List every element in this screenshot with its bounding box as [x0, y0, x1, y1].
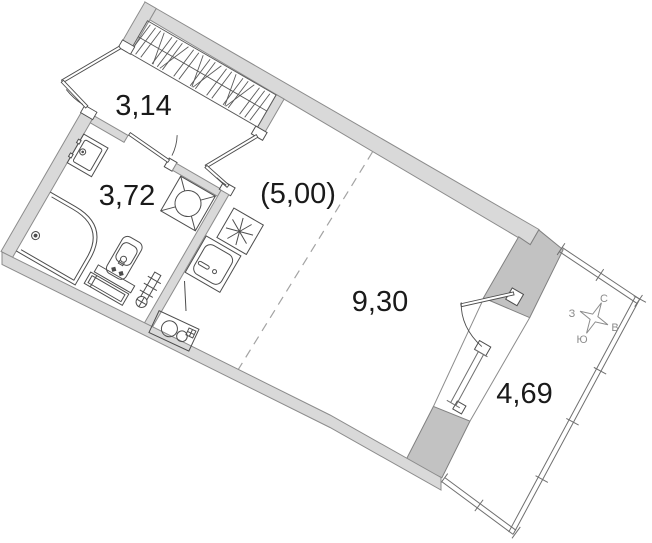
svg-text:(5,00): (5,00)	[260, 178, 336, 210]
svg-text:4,69: 4,69	[496, 378, 552, 410]
svg-text:С: С	[600, 293, 608, 305]
svg-text:З: З	[569, 308, 576, 320]
svg-text:9,30: 9,30	[352, 286, 408, 318]
svg-text:Ю: Ю	[576, 334, 587, 346]
svg-text:3,72: 3,72	[99, 180, 155, 212]
svg-text:В: В	[611, 322, 618, 334]
svg-text:3,14: 3,14	[115, 90, 171, 122]
